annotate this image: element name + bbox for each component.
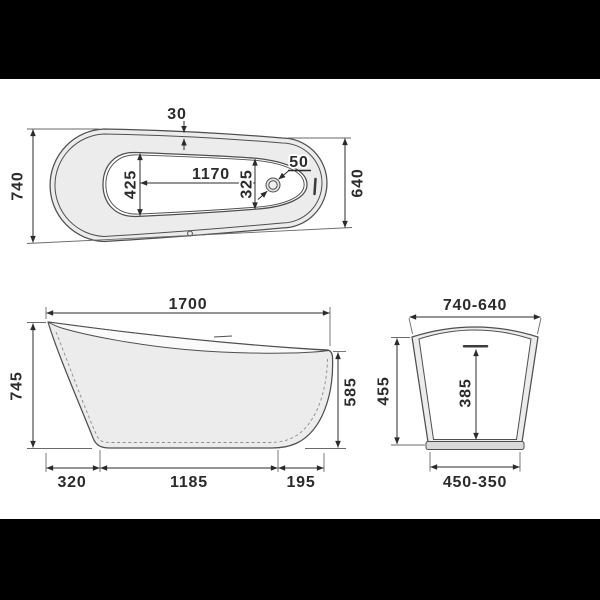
dim-base-setback-front-label: 195 — [286, 474, 315, 491]
letterbox-bottom — [0, 519, 600, 600]
bathtub-dimension-drawing: 740 640 30 425 1170 325 — [0, 0, 600, 600]
drain-inner-circle — [269, 181, 277, 189]
dim-height-back-label: 745 — [9, 371, 26, 400]
dim-inner-width-head-label: 425 — [123, 170, 140, 199]
dim-overall-length-label: 1700 — [169, 296, 208, 313]
dim-overall-width-label: 740 — [10, 171, 27, 200]
dim-inner-width-foot-label: 325 — [239, 169, 256, 198]
dim-drain-diameter-label: 50 — [289, 154, 308, 171]
dim-end-height-label: 455 — [376, 376, 393, 405]
overflow-slot — [315, 179, 316, 194]
letterbox-top — [0, 0, 600, 79]
dim-end-depth-label: 385 — [458, 378, 475, 407]
letterboxed-drawing-image: 740 640 30 425 1170 325 — [0, 0, 600, 600]
base-plinth — [426, 442, 524, 450]
dim-foot-width-label: 640 — [350, 168, 367, 197]
dim-end-base-width-label: 450-350 — [443, 474, 507, 491]
dim-end-top-width-label: 740-640 — [443, 297, 507, 314]
dim-base-setback-back-label: 320 — [57, 474, 86, 491]
dim-base-length-label: 1185 — [170, 474, 208, 491]
dim-height-front-label: 585 — [343, 377, 360, 406]
dim-rim-width-label: 30 — [167, 106, 186, 123]
dim-inner-length-label: 1170 — [192, 166, 230, 183]
